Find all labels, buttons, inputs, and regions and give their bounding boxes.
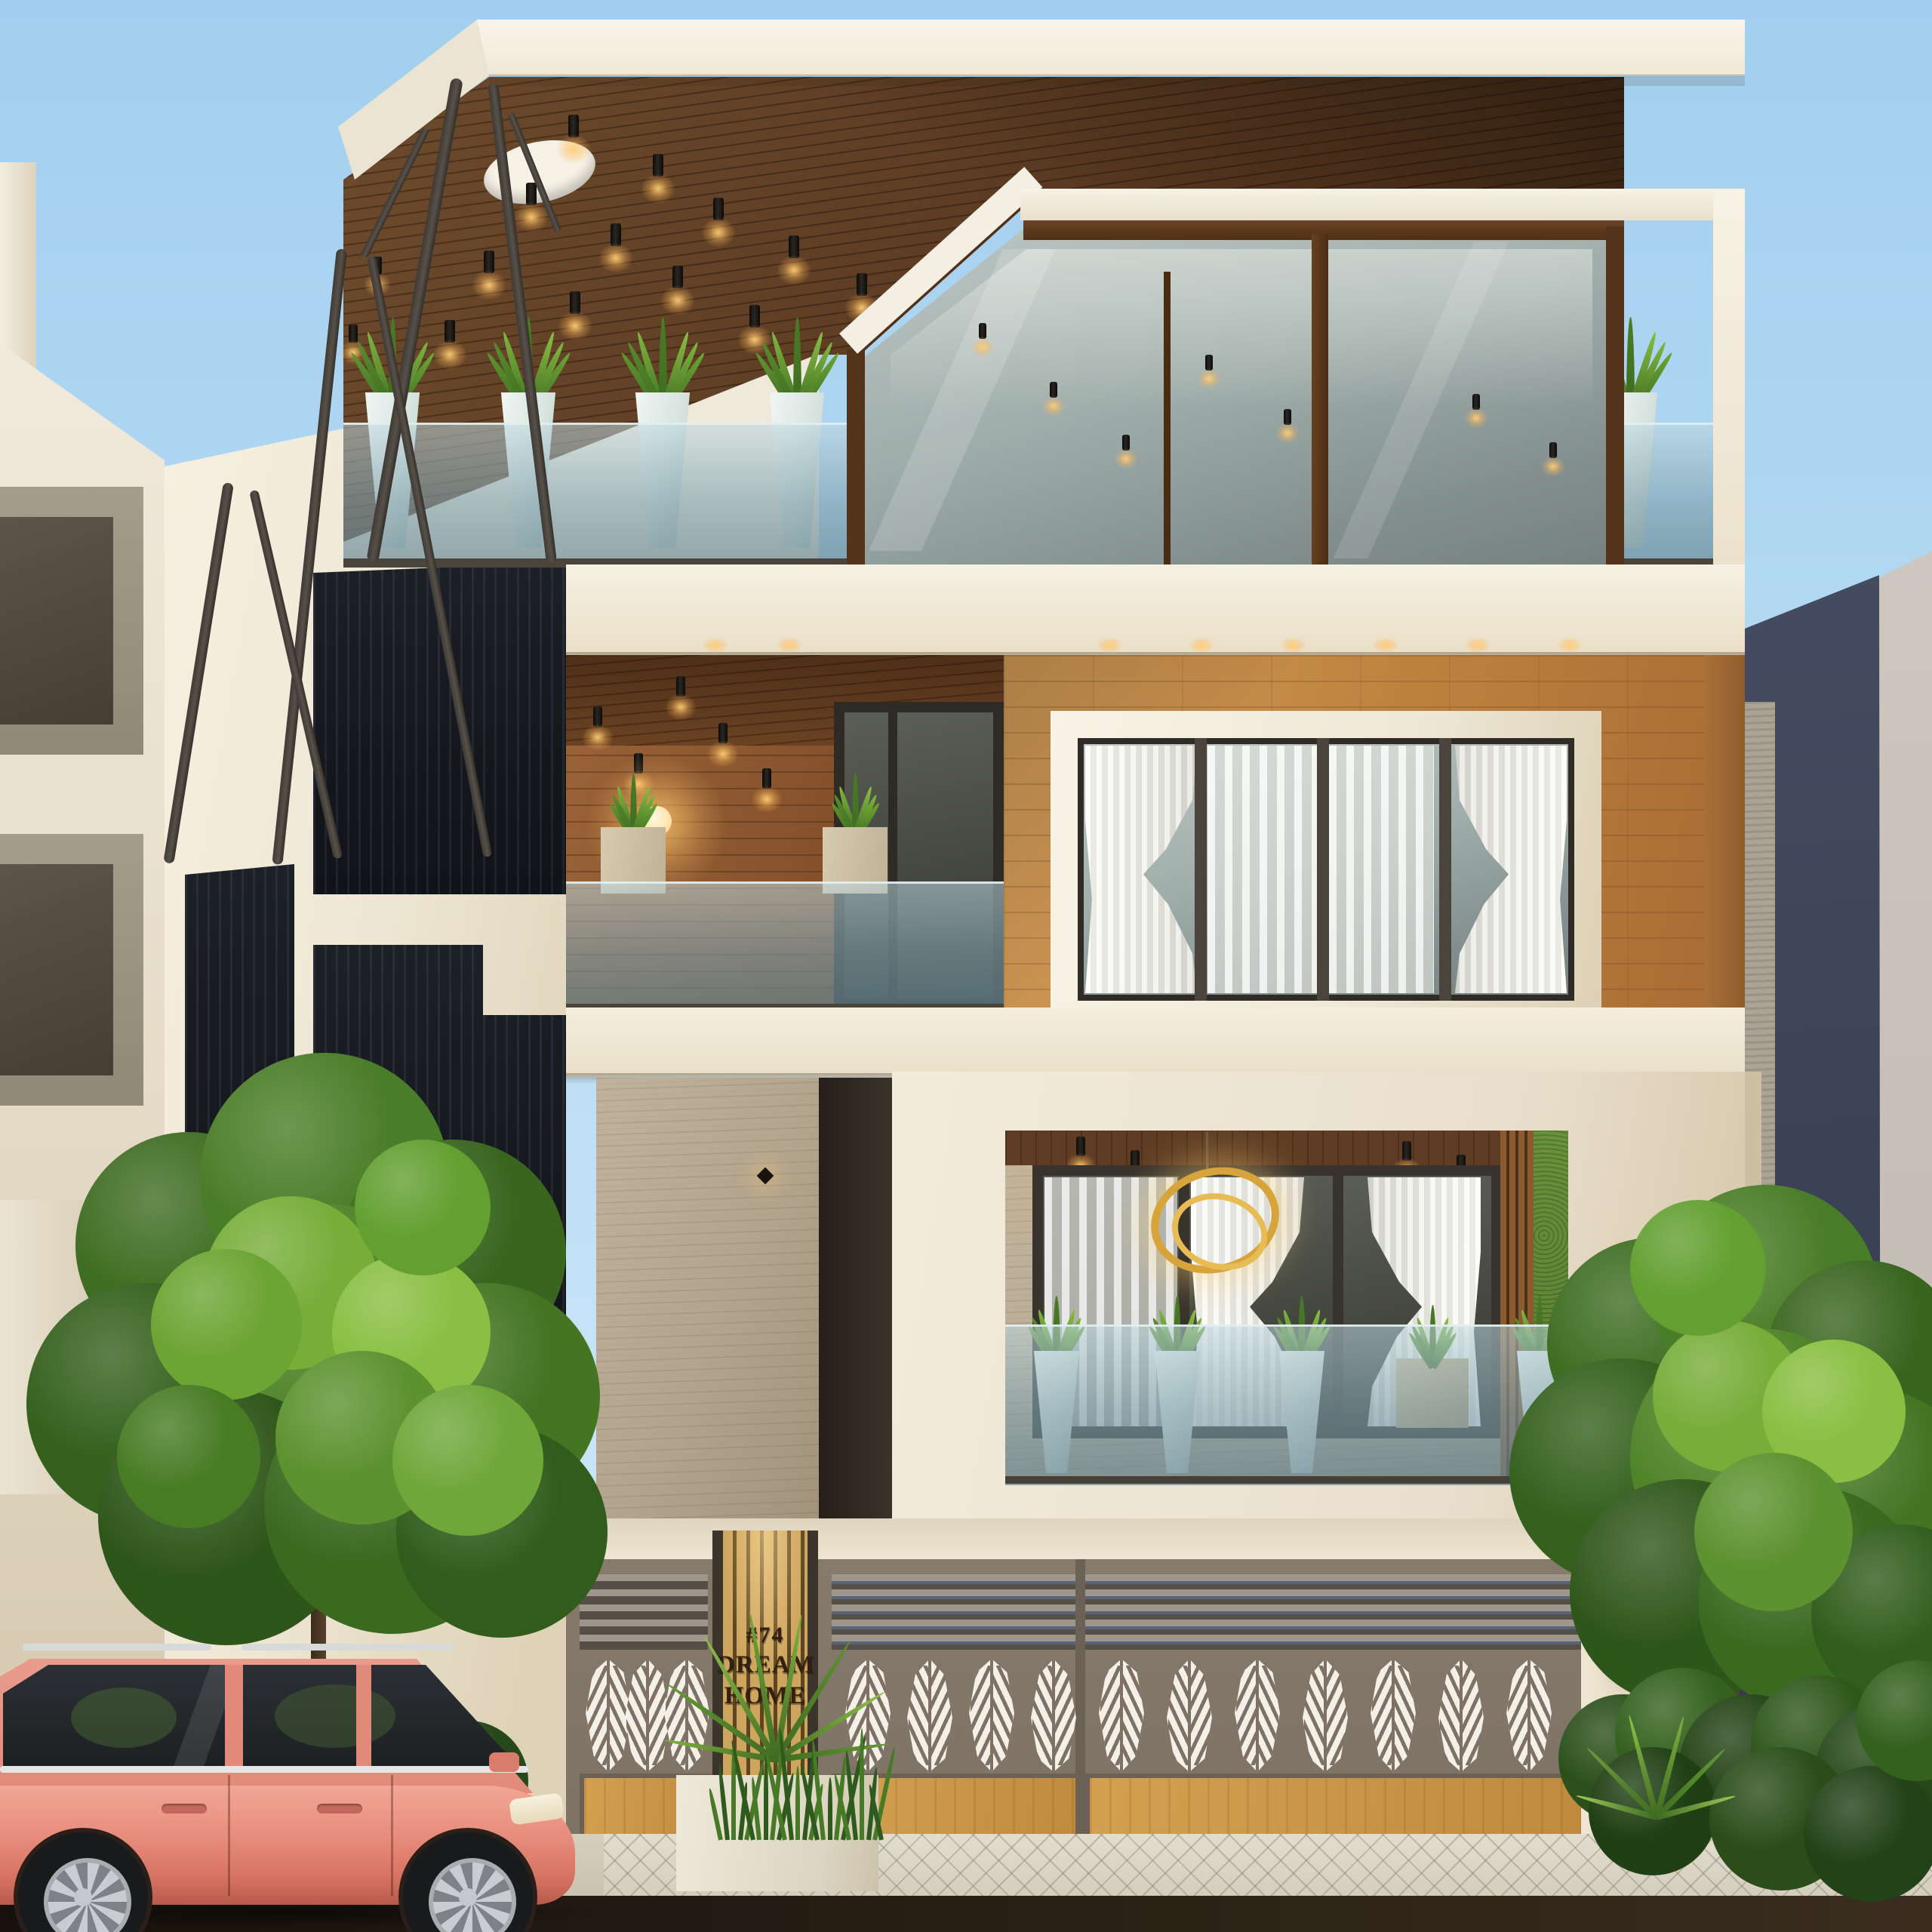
glassroom-frame-left-jamb — [847, 349, 865, 565]
downlight-glow — [1275, 423, 1300, 444]
glassroom-mullion — [1312, 234, 1328, 565]
foliage-blob — [392, 1385, 543, 1536]
leaf-stem — [866, 1659, 869, 1772]
car-window-reflection — [275, 1684, 395, 1748]
downlight-glow — [514, 202, 549, 232]
car-door-handle — [317, 1804, 362, 1814]
travertine-entry-pier — [596, 1078, 819, 1523]
gate-mid-louver — [832, 1574, 1075, 1650]
oak-side-return — [1704, 655, 1745, 1028]
glassroom-white-fascia-top — [1020, 189, 1713, 220]
foliage-blob — [1694, 1453, 1853, 1611]
window-mullion — [1439, 738, 1451, 1001]
car-belt-chrome — [0, 1766, 528, 1773]
gate-right-wood-base — [1085, 1774, 1590, 1843]
balcony3-glass-balustrade — [566, 881, 1004, 1012]
downlight-glow — [701, 217, 736, 248]
neighbor-window-box-1-glass — [0, 517, 113, 724]
downlight-glow — [582, 724, 613, 751]
leaf-stem — [685, 1659, 688, 1772]
downlight-glow — [777, 255, 811, 285]
car-window-band — [3, 1665, 519, 1767]
downlight-glow — [660, 285, 695, 315]
glassroom-mullion-thin — [1164, 272, 1171, 565]
architectural-render-scene: #74 DREAM HOME — [0, 0, 1932, 1932]
house-name-line1: DREAM — [717, 1650, 814, 1681]
foliage-blob — [117, 1385, 260, 1528]
downlight-glow — [1197, 368, 1221, 389]
downlight-glow — [558, 311, 592, 341]
leaf-stem — [928, 1659, 931, 1772]
balcony2-rail — [1005, 1476, 1568, 1484]
leaf-stem — [1256, 1659, 1259, 1772]
soffit-light-glow — [1372, 637, 1399, 654]
car-hub — [74, 1888, 92, 1906]
car-roof-rail — [23, 1644, 211, 1651]
car-hub — [459, 1888, 477, 1906]
downlight-glow — [971, 337, 995, 358]
crown-top-band — [477, 20, 1745, 77]
leaf-stem — [646, 1659, 649, 1772]
car-door-seam — [228, 1775, 230, 1896]
downlight-glow — [1464, 408, 1488, 429]
leaf-stem — [1527, 1659, 1531, 1772]
leaf-stem — [1392, 1659, 1395, 1772]
leaf-stem — [1120, 1659, 1123, 1772]
downlight-glow — [1114, 448, 1138, 469]
downlight-glow — [556, 134, 591, 165]
soffit-light-glow — [702, 637, 729, 654]
mid-slab-band — [566, 1008, 1745, 1077]
leaf-stem — [1324, 1659, 1327, 1772]
neighbor-window-box-2-glass — [0, 864, 113, 1075]
foliage-blob — [355, 1140, 491, 1275]
car-roof-rail — [241, 1644, 453, 1651]
car-c-pillar — [356, 1665, 371, 1770]
foliage-blob — [1630, 1200, 1766, 1336]
car-mirror — [489, 1752, 519, 1772]
downlight-glow — [641, 174, 675, 204]
car-door-seam — [391, 1775, 393, 1896]
foliage-blob — [151, 1249, 302, 1400]
leaf-stem — [1052, 1659, 1055, 1772]
crown-underside-shadow — [489, 74, 1745, 86]
soffit-light-glow — [1464, 637, 1491, 654]
glassroom-frame-right-jamb — [1606, 226, 1624, 565]
parked-car — [0, 1615, 604, 1932]
car-door-handle — [162, 1804, 207, 1814]
downlight-glow — [665, 694, 696, 721]
downlight-glow — [1541, 456, 1565, 477]
downlight-glow — [472, 270, 506, 300]
soffit-light-glow — [1556, 637, 1583, 654]
gate-frame-divider — [1075, 1559, 1085, 1838]
grass-blade — [828, 1777, 832, 1840]
soffit-light-glow — [776, 637, 803, 654]
leaf-stem — [1188, 1659, 1191, 1772]
leaf-stem — [990, 1659, 993, 1772]
soffit-light-glow — [1096, 637, 1123, 654]
crown-right-wall — [1713, 189, 1745, 566]
balcony2-glass-balustrade — [1005, 1324, 1568, 1485]
entry-recess-shadow — [819, 1078, 892, 1523]
grass-blade — [860, 1728, 864, 1840]
downlight-glow — [598, 243, 633, 273]
car-b-pillar — [225, 1665, 243, 1770]
downlight-glow — [751, 786, 782, 813]
leaf-stem — [1460, 1659, 1463, 1772]
window-mullion — [1195, 738, 1207, 1001]
car-window-reflection — [71, 1687, 177, 1748]
downlight-glow — [432, 340, 467, 370]
window-mullion — [1317, 738, 1329, 1001]
soffit-light-glow — [1280, 637, 1307, 654]
leaf-stem — [607, 1659, 610, 1772]
soffit-light-glow — [1188, 637, 1215, 654]
grass-blade — [795, 1766, 800, 1840]
downlight-glow — [1041, 395, 1066, 417]
gate-right-louver — [1085, 1574, 1581, 1650]
foliage-blob — [1804, 1766, 1932, 1902]
